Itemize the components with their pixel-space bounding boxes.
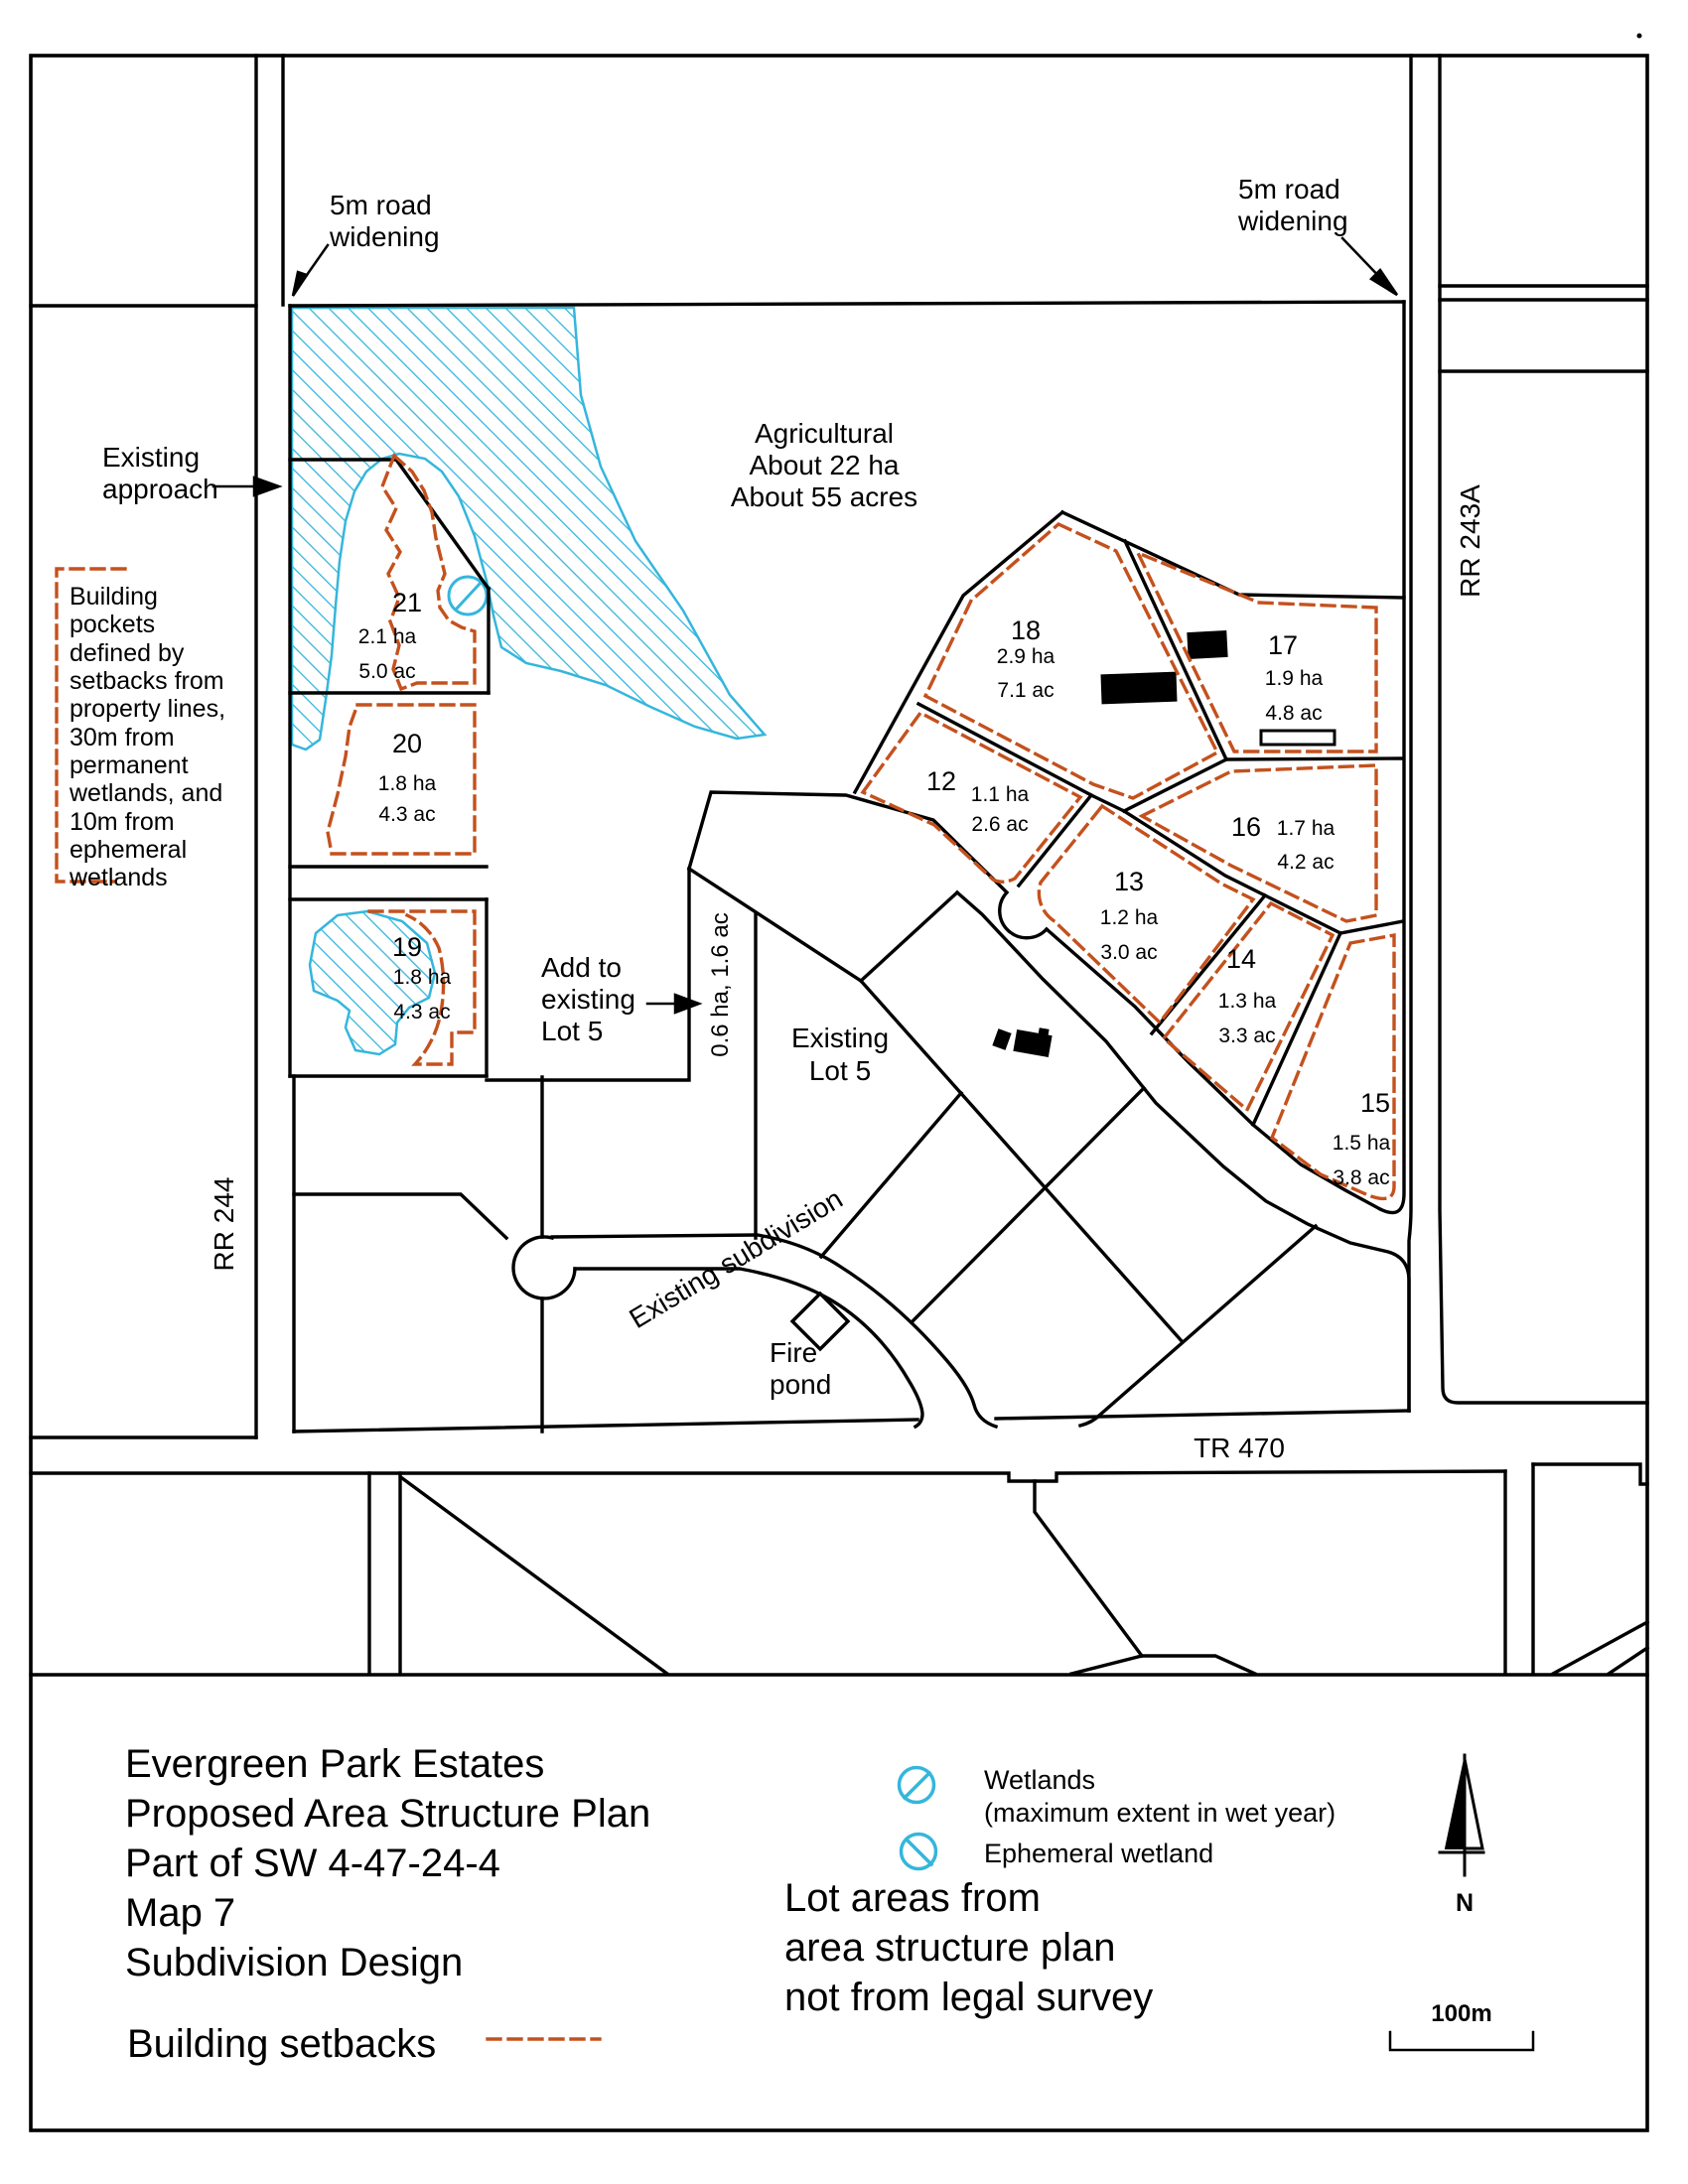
svg-text:RR 244: RR 244 [209,1177,239,1272]
svg-text:widening: widening [329,221,440,252]
svg-text:2.1 ha: 2.1 ha [358,625,417,648]
svg-text:About 22 ha: About 22 ha [749,450,899,480]
svg-text:Add to: Add to [541,952,622,983]
svg-text:4.8 ac: 4.8 ac [1265,702,1322,725]
svg-text:approach: approach [102,474,218,504]
svg-text:existing: existing [541,984,635,1015]
svg-text:Agricultural: Agricultural [755,418,894,449]
svg-text:1.7 ha: 1.7 ha [1277,817,1336,840]
svg-text:4.2 ac: 4.2 ac [1277,851,1334,874]
svg-text:area structure plan: area structure plan [784,1926,1116,1970]
svg-text:permanent: permanent [70,751,189,779]
svg-text:Ephemeral wetland: Ephemeral wetland [984,1839,1213,1868]
svg-text:About 55 acres: About 55 acres [731,481,917,512]
svg-text:N: N [1456,1889,1474,1917]
svg-text:Evergreen Park Estates: Evergreen Park Estates [125,1742,544,1786]
svg-text:21: 21 [392,588,422,617]
svg-text:ephemeral: ephemeral [70,836,187,864]
svg-text:5.0 ac: 5.0 ac [358,660,415,683]
svg-text:Part of SW 4-47-24-4: Part of SW 4-47-24-4 [125,1842,500,1885]
svg-text:3.3 ac: 3.3 ac [1218,1024,1275,1047]
svg-text:4.3 ac: 4.3 ac [393,1001,450,1024]
svg-text:1.2 ha: 1.2 ha [1100,906,1159,929]
svg-text:19: 19 [392,932,422,962]
svg-text:property lines,: property lines, [70,695,225,723]
svg-text:4.3 ac: 4.3 ac [378,803,435,826]
svg-text:1.8 ha: 1.8 ha [378,772,437,795]
svg-text:Fire: Fire [770,1337,817,1368]
svg-text:not from legal survey: not from legal survey [784,1976,1153,2019]
svg-text:Building setbacks: Building setbacks [127,2022,436,2066]
svg-text:14: 14 [1226,944,1256,974]
svg-text:Map 7: Map 7 [125,1891,235,1935]
svg-text:100m: 100m [1431,2000,1491,2027]
svg-text:RR 243A: RR 243A [1455,484,1485,598]
svg-text:1.9 ha: 1.9 ha [1265,667,1324,690]
svg-text:12: 12 [926,766,956,796]
svg-text:wetlands, and: wetlands, and [69,779,222,807]
svg-text:Existing: Existing [102,442,200,473]
svg-text:3.0 ac: 3.0 ac [1100,941,1157,964]
svg-text:TR 470: TR 470 [1194,1433,1285,1463]
svg-text:Wetlands: Wetlands [984,1765,1095,1795]
svg-text:16: 16 [1231,812,1261,842]
svg-text:setbacks from: setbacks from [70,667,224,695]
svg-text:Lot 5: Lot 5 [809,1055,871,1086]
svg-text:defined by: defined by [70,639,185,667]
svg-text:0.6 ha, 1.6 ac: 0.6 ha, 1.6 ac [707,912,734,1056]
svg-text:18: 18 [1011,615,1041,645]
svg-text:13: 13 [1114,867,1144,896]
svg-text:3.8 ac: 3.8 ac [1333,1166,1389,1189]
svg-text:(maximum extent in wet year): (maximum extent in wet year) [984,1798,1336,1828]
svg-text:20: 20 [392,729,422,758]
svg-text:7.1 ac: 7.1 ac [997,679,1054,702]
svg-text:Lot 5: Lot 5 [541,1016,603,1046]
svg-text:5m road: 5m road [1238,174,1340,205]
svg-text:Proposed Area Structure Plan: Proposed Area Structure Plan [125,1792,650,1836]
svg-text:Building: Building [70,583,158,611]
svg-text:Existing: Existing [791,1023,889,1053]
svg-text:1.8 ha: 1.8 ha [393,966,452,989]
svg-text:15: 15 [1360,1088,1390,1118]
svg-text:5m road: 5m road [330,190,432,220]
svg-text:1.5 ha: 1.5 ha [1333,1132,1391,1155]
svg-text:1.1 ha: 1.1 ha [971,783,1030,806]
svg-text:30m from: 30m from [70,724,175,751]
svg-text:widening: widening [1237,205,1348,236]
svg-text:10m from: 10m from [70,808,175,836]
svg-text:2.6 ac: 2.6 ac [971,813,1028,836]
svg-text:1.3 ha: 1.3 ha [1218,990,1277,1013]
svg-text:pockets: pockets [70,611,155,638]
svg-text:2.9 ha: 2.9 ha [997,645,1055,668]
svg-text:Subdivision Design: Subdivision Design [125,1941,463,1984]
svg-text:17: 17 [1268,630,1298,660]
svg-text:Lot areas from: Lot areas from [784,1876,1041,1920]
svg-text:wetlands: wetlands [69,864,168,891]
svg-text:pond: pond [770,1369,831,1400]
